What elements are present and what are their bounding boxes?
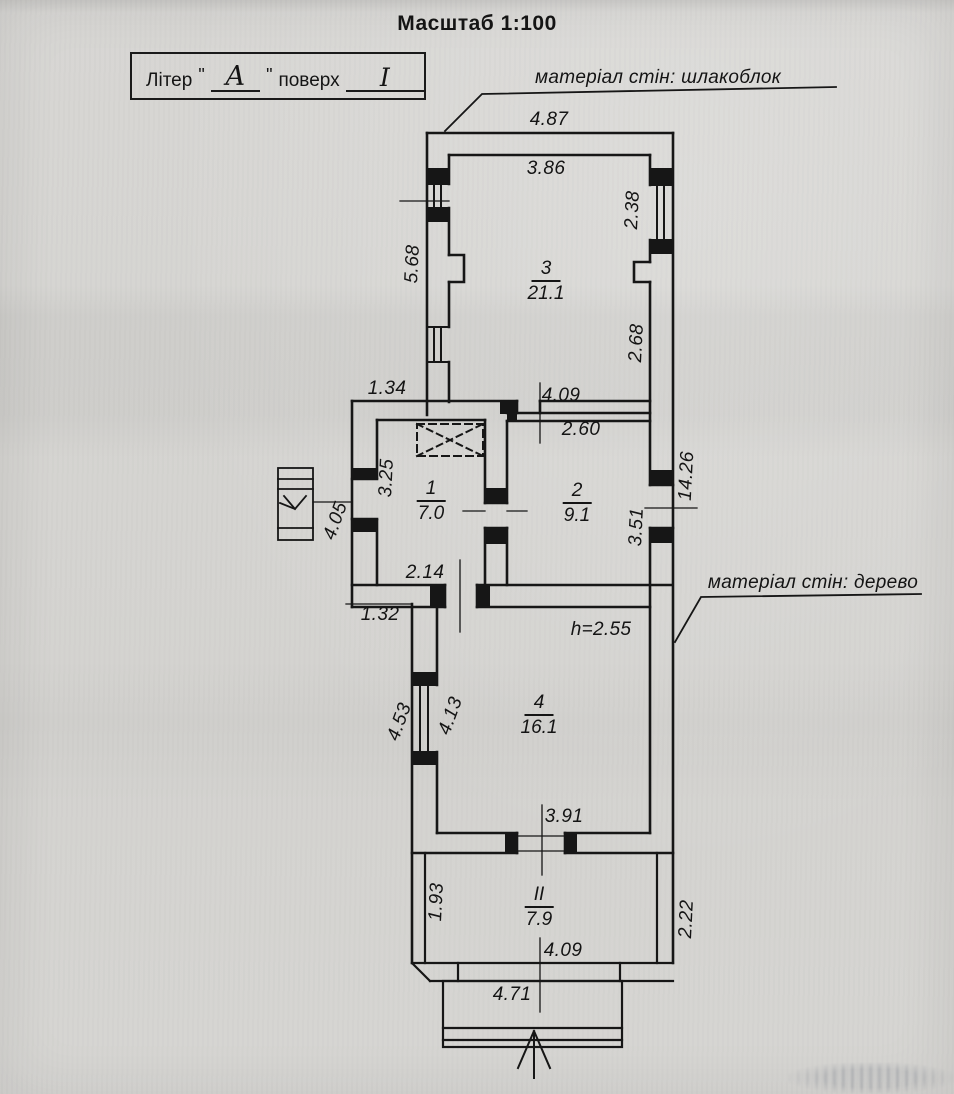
dim-top-outer: 4.87 bbox=[530, 109, 569, 131]
leader-line-shlakoblok bbox=[445, 87, 836, 131]
room2-area: 9.1 bbox=[563, 504, 592, 525]
floor-plan-drawing bbox=[0, 0, 954, 1094]
room4-area: 16.1 bbox=[521, 716, 558, 737]
stairs-arrow-icon bbox=[284, 496, 306, 509]
dim-room2-height: 3.51 bbox=[625, 507, 649, 547]
room1-area: 7.0 bbox=[417, 502, 446, 523]
dim-veranda-width: 4.09 bbox=[544, 940, 583, 962]
ceiling-height-note: h=2.55 bbox=[571, 619, 631, 641]
stove-symbol bbox=[417, 424, 483, 456]
dim-top-inner: 3.86 bbox=[527, 158, 566, 180]
room1-left-wall-fills bbox=[352, 468, 377, 532]
scanned-floor-plan-page: Масштаб 1:100 Літер " А " поверх I bbox=[0, 0, 954, 1094]
stamp-fragment bbox=[788, 1062, 954, 1094]
room3-area: 21.1 bbox=[528, 282, 565, 303]
veranda-area: 7.9 bbox=[525, 908, 554, 929]
room1-left-wall bbox=[352, 401, 377, 607]
room2-right-opening-fills bbox=[650, 470, 673, 543]
room2-right-opening bbox=[650, 485, 673, 528]
room3-number: 3 bbox=[532, 259, 561, 282]
dim-right-inner-top: 2.68 bbox=[625, 323, 649, 363]
dim-overall-right: 14.26 bbox=[675, 451, 700, 502]
room3-label: 3 21.1 bbox=[528, 259, 565, 303]
room2-number: 2 bbox=[563, 481, 592, 504]
room2-label: 2 9.1 bbox=[563, 481, 592, 525]
room1-number: 1 bbox=[417, 479, 446, 502]
wall-material-top-note: матеріал стін: шлакоблок bbox=[535, 67, 781, 89]
room3-left-window-upper bbox=[427, 184, 449, 208]
mid-band-fills bbox=[500, 401, 517, 422]
dim-right-window: 2.38 bbox=[621, 190, 645, 230]
stairs-symbol bbox=[278, 468, 313, 540]
veranda-number: II bbox=[525, 885, 554, 908]
room4-number: 4 bbox=[525, 693, 554, 716]
room1-label: 1 7.0 bbox=[417, 479, 446, 523]
leader-line-derevo bbox=[675, 594, 921, 642]
dim-room1-width: 2.14 bbox=[406, 562, 445, 584]
dim-room1-height: 3.25 bbox=[375, 458, 399, 498]
room3-right-window bbox=[650, 185, 673, 240]
dim-mid-opening: 4.09 bbox=[542, 385, 581, 407]
entrance-arrow-icon bbox=[518, 1031, 550, 1078]
wall-material-right-note: матеріал стін: дерево bbox=[708, 572, 918, 594]
room1-room2-wall-fills bbox=[485, 488, 507, 544]
dim-mid-left-offset: 1.34 bbox=[368, 378, 407, 400]
dim-lower-left-offset: 1.32 bbox=[361, 604, 400, 626]
porch-steps bbox=[443, 981, 622, 1047]
room4-label: 4 16.1 bbox=[521, 693, 558, 737]
room4-left-window bbox=[412, 685, 437, 752]
dim-room2-width: 2.60 bbox=[562, 419, 601, 441]
room3-left-window-lower bbox=[427, 327, 449, 362]
dim-left-wall-top: 5.68 bbox=[401, 244, 425, 284]
dim-bottom-outer: 4.71 bbox=[493, 984, 532, 1006]
veranda-label: II 7.9 bbox=[525, 885, 554, 929]
dim-room4-opening: 3.91 bbox=[545, 806, 584, 828]
dim-veranda-left: 1.93 bbox=[425, 882, 449, 922]
dim-veranda-right: 2.22 bbox=[675, 899, 699, 939]
